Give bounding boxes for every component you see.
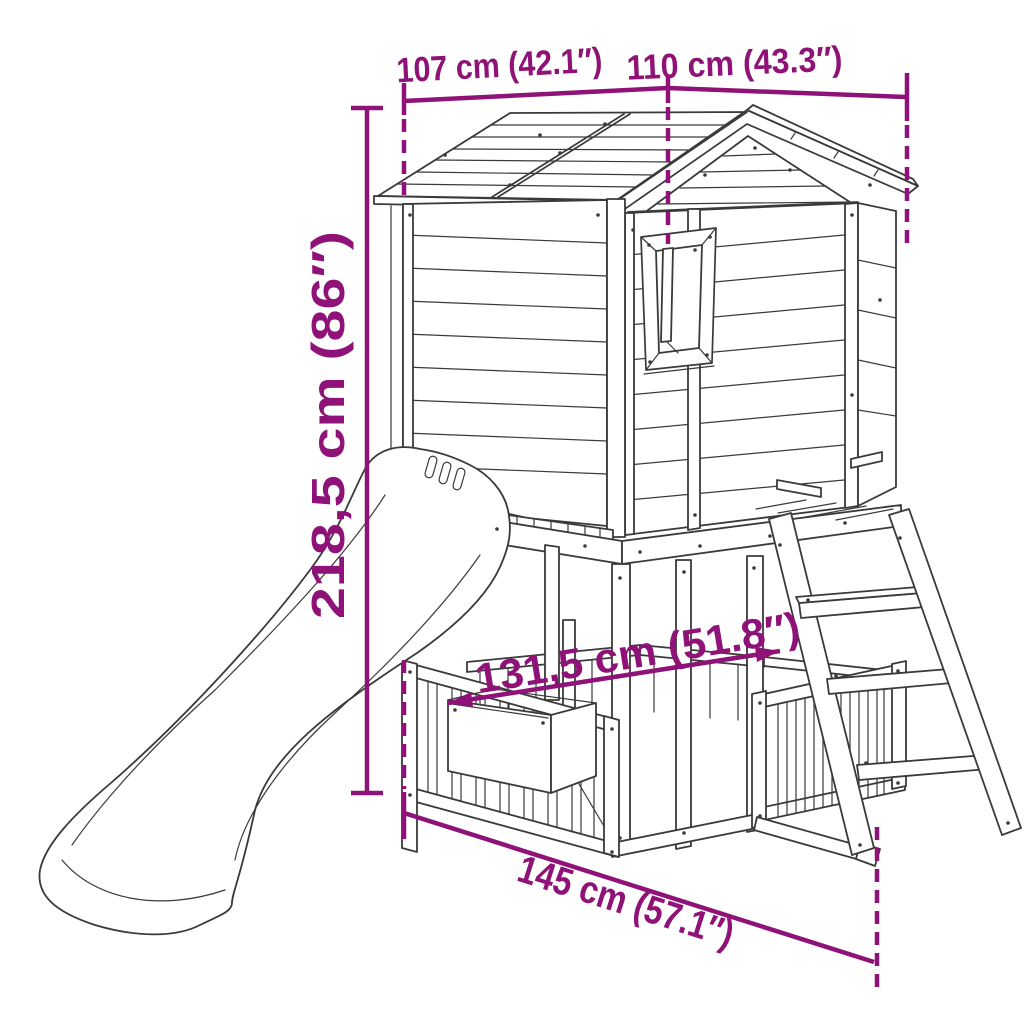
label-roof-width-right: 110 cm (43.3″)	[626, 39, 843, 87]
right-wall	[851, 203, 896, 506]
playhouse-drawing	[39, 105, 1021, 934]
window-casement	[661, 248, 673, 342]
corner-post	[607, 199, 625, 537]
diagram-stage: 107 cm (42.1″) 110 cm (43.3″) 218,5 cm (…	[0, 0, 1024, 1024]
playhouse-dimension-diagram: 107 cm (42.1″) 110 cm (43.3″) 218,5 cm (…	[0, 0, 1024, 1024]
label-roof-depth-left: 107 cm (42.1″)	[396, 41, 604, 91]
label-base-depth: 145 cm (57.1″)	[513, 848, 740, 957]
label-total-height: 218,5 cm (86″)	[302, 231, 354, 619]
slide	[39, 447, 509, 934]
window	[641, 228, 716, 374]
